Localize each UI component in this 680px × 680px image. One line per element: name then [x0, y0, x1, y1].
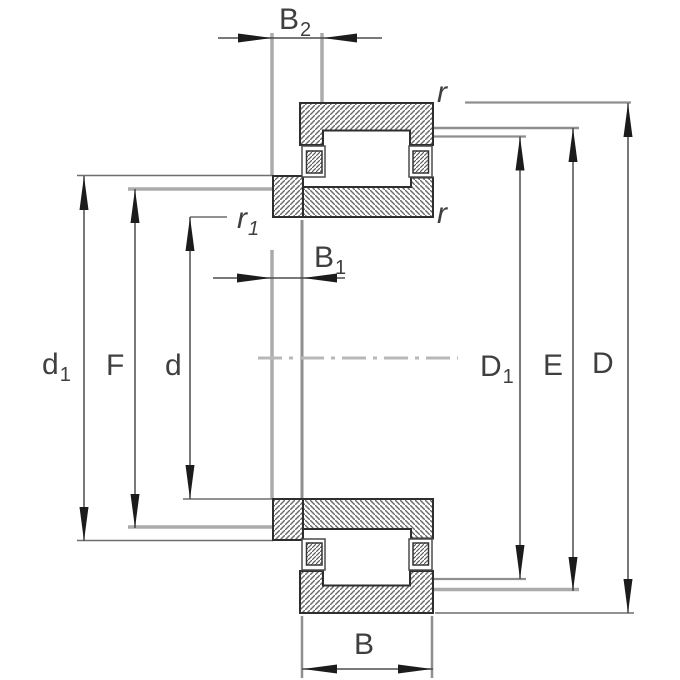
angle-ring-lower — [273, 499, 303, 540]
label-d: d — [165, 349, 182, 384]
label-d1-main: d — [42, 348, 59, 381]
arrow-e-bottom — [569, 557, 578, 591]
angle-ring-upper — [273, 176, 303, 217]
arrow-b2-left — [238, 34, 272, 43]
label-D1-main: D — [480, 350, 502, 383]
roller-lower-right — [413, 543, 429, 565]
label-B1-main: B — [314, 241, 334, 274]
label-B-main: B — [354, 628, 374, 661]
label-B1-sub: 1 — [335, 257, 346, 279]
label-d-main: d — [165, 349, 182, 382]
bearing-dimension-diagram: B2 B1 r1 r r d1 F d D1 E D B — [0, 0, 680, 680]
label-B: B — [354, 628, 374, 663]
label-F-main: F — [106, 349, 124, 382]
label-d1: d1 — [42, 348, 70, 383]
arrow-dd1-bottom — [516, 545, 525, 579]
roller-upper-left — [307, 151, 323, 173]
arrow-f-top — [131, 189, 140, 223]
label-D: D — [592, 347, 614, 382]
bearing-lower-section — [273, 499, 433, 613]
outer-ring-upper — [300, 103, 433, 145]
arrow-d-top — [186, 217, 195, 251]
roller-lower-left — [307, 543, 323, 565]
label-B1: B1 — [314, 241, 345, 276]
arrow-dd1-top — [516, 137, 525, 171]
label-D1: D1 — [480, 350, 513, 385]
label-r-top: r — [437, 76, 447, 111]
bearing-upper-section — [273, 103, 433, 217]
outer-ring-lower — [300, 571, 433, 613]
arrow-d-bottom — [186, 465, 195, 499]
arrow-d1-top — [80, 176, 89, 210]
label-r1-sub: 1 — [248, 218, 259, 240]
label-r-mid-main: r — [437, 197, 447, 230]
label-r-top-main: r — [437, 76, 447, 109]
arrow-b2-right — [323, 34, 357, 43]
roller-upper-right — [413, 151, 429, 173]
inner-ring-lower — [303, 499, 433, 539]
label-r-mid: r — [437, 197, 447, 232]
arrow-f-bottom — [131, 494, 140, 528]
label-E: E — [543, 349, 563, 384]
label-B2-main: B — [279, 3, 299, 36]
label-E-main: E — [543, 349, 563, 382]
label-D-main: D — [592, 347, 614, 380]
arrow-b1-left — [237, 274, 271, 283]
arrow-e-top — [569, 128, 578, 162]
arrow-dcap-top — [624, 103, 633, 137]
label-d1-sub: 1 — [60, 364, 71, 386]
bearing-cross-section-drawing — [0, 0, 680, 680]
arrow-dcap-bottom — [624, 579, 633, 613]
inner-ring-upper — [303, 178, 433, 218]
label-r1: r1 — [237, 202, 258, 237]
label-B2-sub: 2 — [300, 19, 311, 41]
arrow-d1-bottom — [80, 507, 89, 541]
label-F: F — [106, 349, 124, 384]
arrow-b-left — [303, 665, 337, 674]
label-D1-sub: 1 — [503, 366, 514, 388]
arrow-b-right — [398, 665, 432, 674]
label-r1-main: r — [237, 202, 247, 235]
label-B2: B2 — [279, 3, 310, 38]
